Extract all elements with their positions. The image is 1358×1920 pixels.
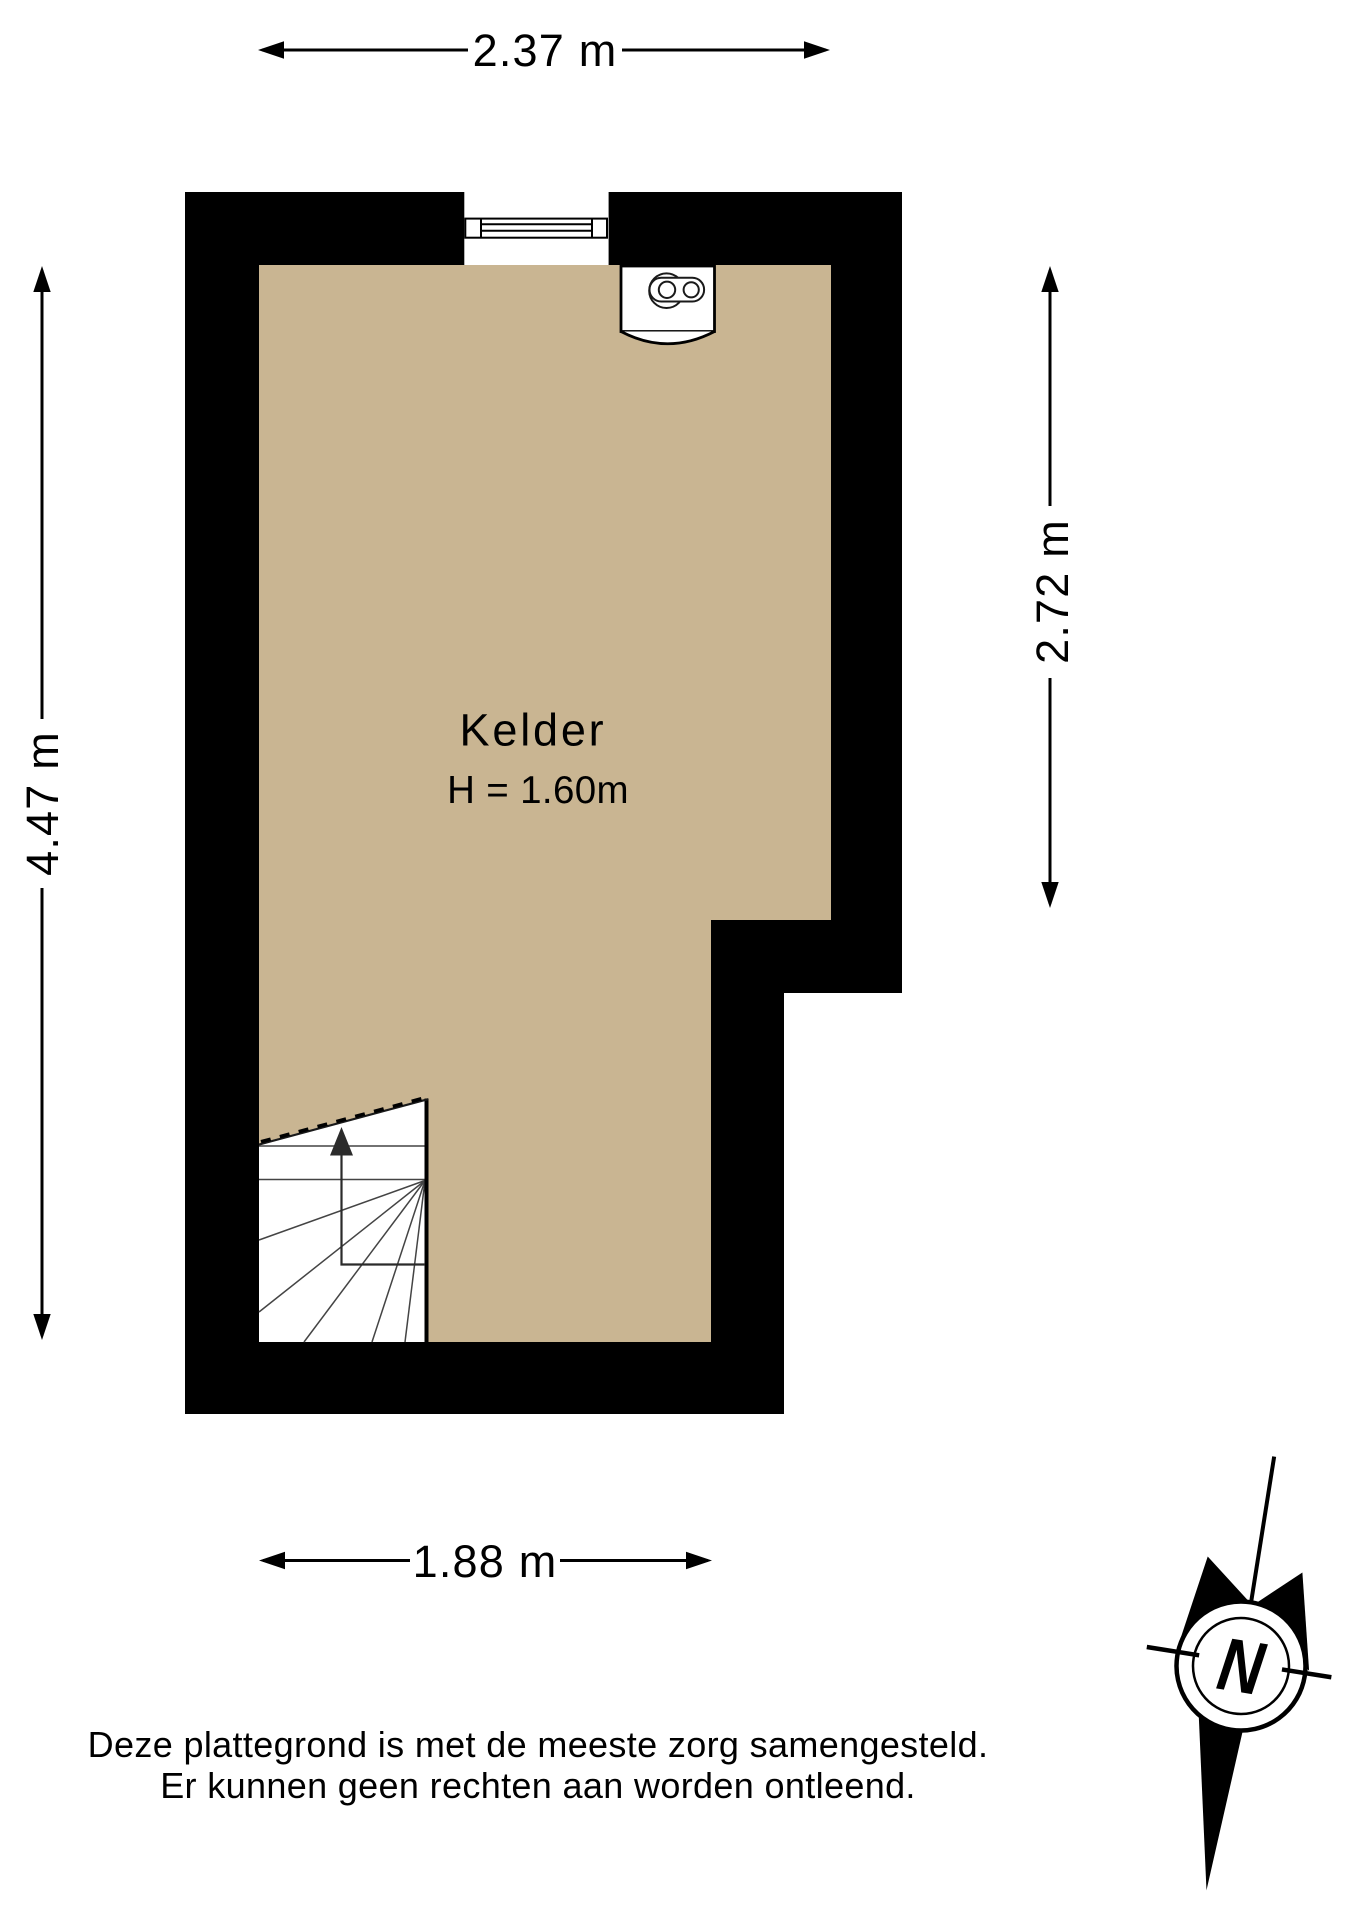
- svg-text:2.72 m: 2.72 m: [1027, 519, 1078, 664]
- svg-text:Deze plattegrond is met de mee: Deze plattegrond is met de meeste zorg s…: [88, 1724, 989, 1765]
- svg-text:Kelder: Kelder: [460, 705, 607, 756]
- svg-text:H = 1.60m: H = 1.60m: [447, 769, 629, 812]
- svg-text:1.88 m: 1.88 m: [413, 1536, 558, 1587]
- svg-text:Er kunnen geen rechten aan wor: Er kunnen geen rechten aan worden ontlee…: [160, 1765, 916, 1806]
- svg-text:2.37 m: 2.37 m: [473, 25, 618, 76]
- svg-text:4.47 m: 4.47 m: [17, 731, 68, 876]
